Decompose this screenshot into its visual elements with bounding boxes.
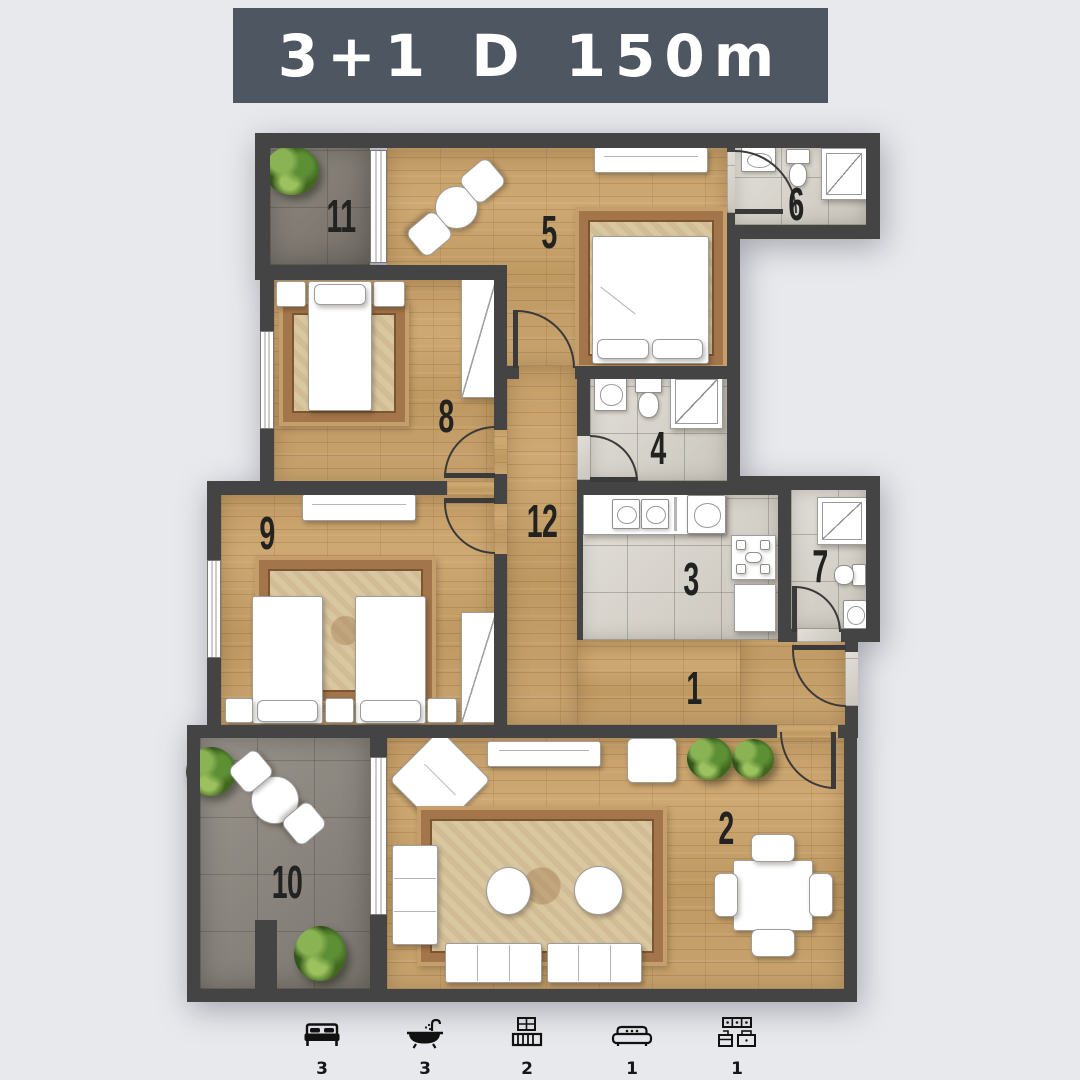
door-leaf: [590, 477, 638, 482]
dining-chair: [751, 834, 795, 862]
toilet-bowl: [834, 565, 854, 585]
plant: [732, 739, 774, 779]
door-leaf: [513, 310, 518, 368]
threshold: [447, 481, 494, 495]
sofa-cushion-line: [394, 911, 436, 912]
entrance-door-leaf: [792, 645, 846, 650]
sofa-cushion-line: [394, 878, 436, 879]
living-rug: [417, 806, 667, 966]
sofa-cushion-line: [610, 945, 611, 981]
sofa-count: 1: [597, 1059, 667, 1079]
room-label-3: 3: [683, 552, 698, 606]
threshold: [494, 428, 507, 476]
wall: [187, 725, 200, 1002]
burner: [760, 564, 770, 574]
window: [370, 150, 387, 263]
wall: [494, 554, 507, 725]
bath-count: 3: [390, 1059, 460, 1079]
nightstand: [325, 698, 354, 723]
tv-console: [487, 741, 601, 767]
wall: [255, 265, 507, 280]
threshold: [727, 150, 735, 213]
wall: [187, 725, 777, 738]
wall: [370, 725, 387, 757]
wall: [778, 476, 791, 642]
pillow: [360, 700, 421, 722]
window: [207, 560, 221, 658]
room-label-1: 1: [686, 661, 701, 715]
room-label-7: 7: [812, 539, 827, 593]
bed-count: 3: [287, 1059, 357, 1079]
sofa-cushion-line: [509, 945, 510, 981]
threshold: [577, 436, 590, 480]
wall: [255, 133, 270, 280]
bed-icon: [302, 1037, 342, 1054]
burner: [760, 540, 770, 550]
room-label-10: 10: [272, 855, 302, 909]
round-hob: [687, 495, 726, 534]
legend-item-sofas: 1: [597, 1020, 667, 1079]
armchair: [627, 738, 677, 783]
room-label-4: 4: [650, 421, 665, 475]
nightstand: [427, 698, 457, 723]
sofa-cushion-line: [477, 945, 478, 981]
coffee-table: [574, 866, 623, 915]
wall: [727, 146, 735, 152]
sofa-section: [445, 943, 542, 983]
sofa-section: [547, 943, 642, 983]
dresser-detail: [604, 156, 698, 157]
tv-detail: [499, 750, 589, 751]
shower: [670, 374, 723, 429]
balcony-count: 2: [492, 1059, 562, 1079]
door-leaf: [444, 498, 495, 503]
room-label-5: 5: [541, 205, 556, 259]
dresser: [302, 494, 416, 521]
wall: [260, 265, 274, 331]
dining-chair: [751, 929, 795, 957]
pillow: [257, 700, 318, 722]
toilet: [786, 149, 810, 164]
wall: [577, 495, 583, 640]
legend-item-baths: 3: [390, 1016, 460, 1079]
threshold: [494, 502, 507, 556]
burner: [736, 540, 746, 550]
nightstand: [373, 281, 405, 307]
wall: [727, 225, 740, 490]
dining-table: [733, 860, 813, 931]
wall: [255, 133, 880, 148]
plant: [294, 926, 346, 981]
wall: [575, 366, 740, 379]
wall: [494, 265, 507, 430]
door-leaf: [444, 473, 495, 478]
window: [260, 331, 274, 429]
room-label-11: 11: [327, 189, 356, 243]
threshold-entrance: [845, 652, 858, 706]
room-label-12: 12: [527, 494, 557, 548]
legend-item-kitchens: 1: [702, 1016, 772, 1079]
kitchen-count: 1: [702, 1059, 772, 1079]
wall: [845, 629, 858, 652]
pillow: [597, 339, 649, 359]
wall: [207, 481, 447, 495]
kitchen-sink: [612, 499, 640, 529]
wall: [866, 133, 880, 239]
sofa-section: [392, 845, 438, 945]
toilet-bowl: [638, 392, 659, 418]
wall: [866, 476, 880, 642]
room-label-2: 2: [718, 801, 733, 855]
wall: [845, 706, 858, 738]
dining-chair: [809, 873, 833, 917]
room-label-8: 8: [438, 389, 453, 443]
bathroom-sink: [843, 600, 867, 629]
wardrobe: [461, 279, 497, 398]
room-label-9: 9: [259, 506, 274, 560]
bathroom-sink: [594, 377, 627, 411]
legend-item-balconies: 2: [492, 1016, 562, 1079]
coffee-table: [486, 867, 531, 915]
wall: [260, 429, 274, 489]
sofa-icon: [610, 1037, 654, 1054]
kitchen-sink: [641, 499, 669, 529]
shower: [817, 497, 867, 545]
wall: [727, 476, 880, 490]
wall: [844, 725, 857, 1002]
burner: [736, 564, 746, 574]
shower: [821, 148, 867, 200]
dining-chair: [714, 873, 738, 917]
wardrobe: [461, 612, 497, 723]
wall: [187, 989, 857, 1002]
burner-center: [745, 552, 762, 563]
window: [370, 757, 387, 915]
pillow: [314, 284, 366, 305]
nightstand: [225, 698, 253, 723]
pillow: [652, 339, 703, 359]
kitchen-icon: [715, 1037, 759, 1054]
dresser: [594, 147, 708, 173]
room-label-6: 6: [788, 177, 803, 231]
wall: [207, 481, 221, 560]
wall: [494, 474, 507, 504]
balcony-icon: [507, 1037, 547, 1054]
plant: [687, 737, 732, 780]
fridge: [734, 584, 776, 632]
door-leaf: [792, 586, 797, 632]
wall: [255, 920, 277, 1000]
floor-plan-page: 3+1 D 150m: [0, 0, 1080, 1080]
dresser-detail: [312, 504, 406, 505]
floor-plan: 1 2 3 4 5 6 7 8 9 10 11 12: [0, 0, 1080, 1080]
toilet: [852, 564, 866, 586]
wall: [577, 366, 590, 436]
nightstand: [276, 281, 306, 307]
door-leaf: [831, 732, 836, 789]
legend-item-beds: 3: [287, 1020, 357, 1079]
plant: [265, 146, 319, 195]
bath-icon: [405, 1037, 445, 1054]
sofa-cushion-line: [578, 945, 579, 981]
counter-divider: [674, 497, 677, 531]
wall: [370, 915, 387, 1002]
door-leaf: [735, 209, 783, 214]
